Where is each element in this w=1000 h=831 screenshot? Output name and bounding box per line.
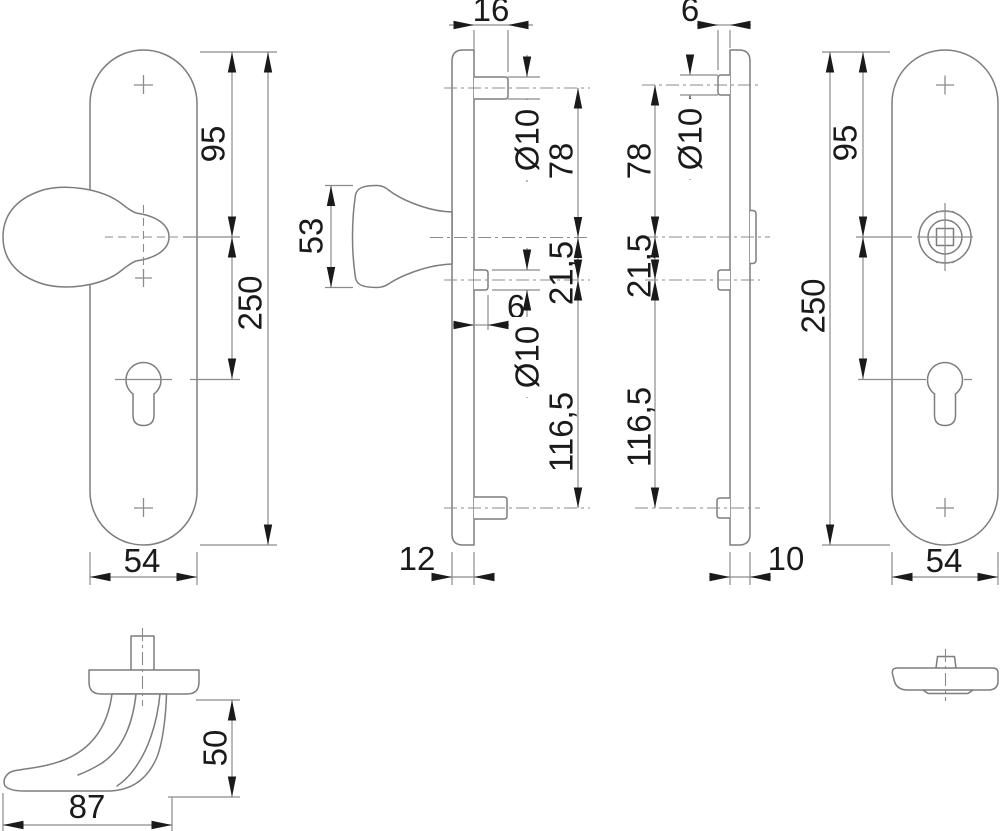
keyhole-stem xyxy=(133,394,154,426)
lever-handle-side-view: 50 87 xyxy=(3,628,240,831)
plate-profile xyxy=(730,50,750,545)
dim-label-250: 250 xyxy=(232,275,269,330)
dim-label-95: 95 xyxy=(827,125,864,162)
dim-label-10: 10 xyxy=(768,540,805,577)
dim-label-o10: Ø10 xyxy=(509,109,546,171)
dim-label-o10: Ø10 xyxy=(509,326,546,388)
technical-drawing-page: 95 250 54 16 53 Ø10 78 21,5 xyxy=(0,0,1000,831)
dim-label-diameter: Ø10 xyxy=(672,99,709,179)
dim-label-o10: Ø10 xyxy=(672,108,709,170)
handle-grip-outline xyxy=(4,694,166,791)
dim-label-12: 12 xyxy=(399,540,436,577)
fixing-cross xyxy=(135,269,152,287)
technical-drawing: 95 250 54 16 53 Ø10 78 21,5 xyxy=(0,0,1000,831)
spindle-center-lines xyxy=(917,203,973,271)
fixing-cross xyxy=(134,498,153,517)
dim-label-250: 250 xyxy=(795,278,832,333)
dim-label-54: 54 xyxy=(926,542,963,579)
dim-label-21-5: 21,5 xyxy=(543,241,580,305)
extension-line xyxy=(474,30,508,72)
knob-plate-front-view: 95 250 54 xyxy=(3,50,277,585)
dim-label-16: 16 xyxy=(473,0,510,28)
dim-label-diameter-top: Ø10 xyxy=(509,100,546,180)
dim-label-116-5: 116,5 xyxy=(543,392,580,472)
dim-label-6: 6 xyxy=(681,0,699,28)
dim-label-50: 50 xyxy=(197,730,234,767)
dim-label-21-5: 21,5 xyxy=(621,234,658,298)
knob-plate-side-view: 16 53 Ø10 78 21,5 6 Ø10 116,5 12 xyxy=(293,0,590,585)
plate-outline xyxy=(90,50,197,545)
handle-collar xyxy=(89,670,199,694)
plate-profile xyxy=(452,50,474,545)
lever-handle-top-view xyxy=(892,649,998,701)
keyhole-stem xyxy=(935,394,956,426)
extension-line xyxy=(718,30,730,70)
knob-profile xyxy=(353,186,453,288)
extension-line xyxy=(452,552,474,585)
fixing-cross xyxy=(134,75,153,94)
plate-outline xyxy=(892,50,998,545)
fixing-cross xyxy=(936,498,954,517)
lever-plate-side-view: 6 Ø10 78 21,5 116,5 10 xyxy=(621,0,805,585)
dim-label-78: 78 xyxy=(543,143,580,180)
extension-line xyxy=(730,552,750,585)
dim-label-54: 54 xyxy=(124,542,161,579)
dim-label-53: 53 xyxy=(293,218,330,255)
keyhole-circle xyxy=(928,363,963,398)
dim-label-78: 78 xyxy=(621,143,658,180)
fixing-cross xyxy=(936,76,954,95)
dim-label-87: 87 xyxy=(69,788,106,825)
dim-label-116-5: 116,5 xyxy=(621,387,658,467)
dim-label-diameter-lower: Ø10 xyxy=(509,317,546,397)
lever-plate-front-view: 95 250 54 xyxy=(795,50,998,585)
dim-label-95: 95 xyxy=(195,126,232,163)
